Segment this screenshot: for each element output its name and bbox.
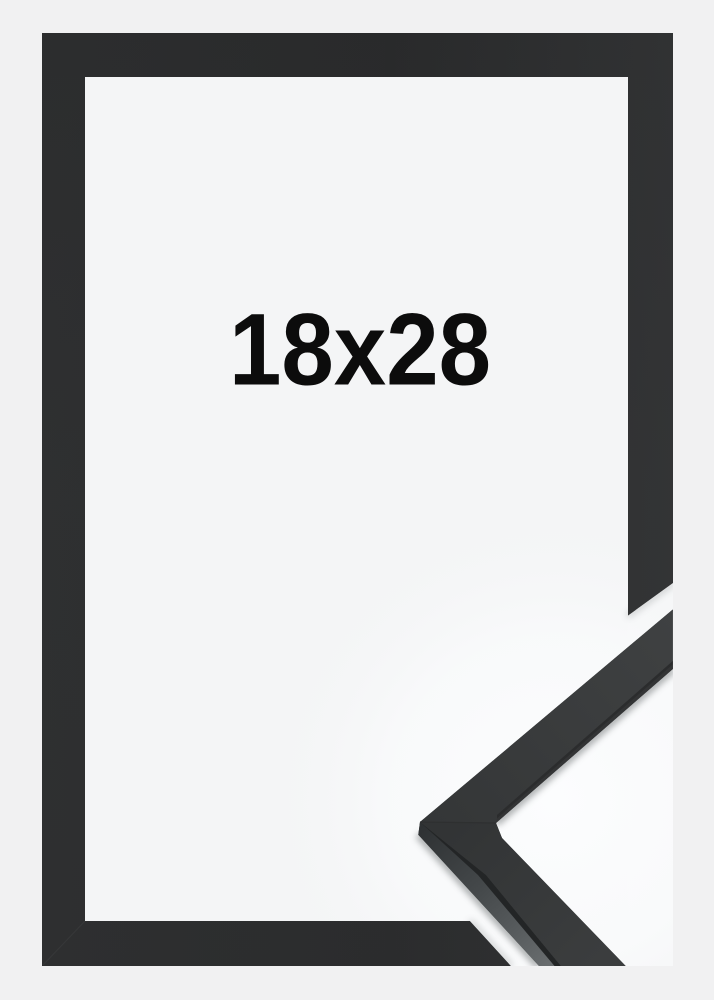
svg-text:18x28: 18x28	[229, 292, 491, 407]
